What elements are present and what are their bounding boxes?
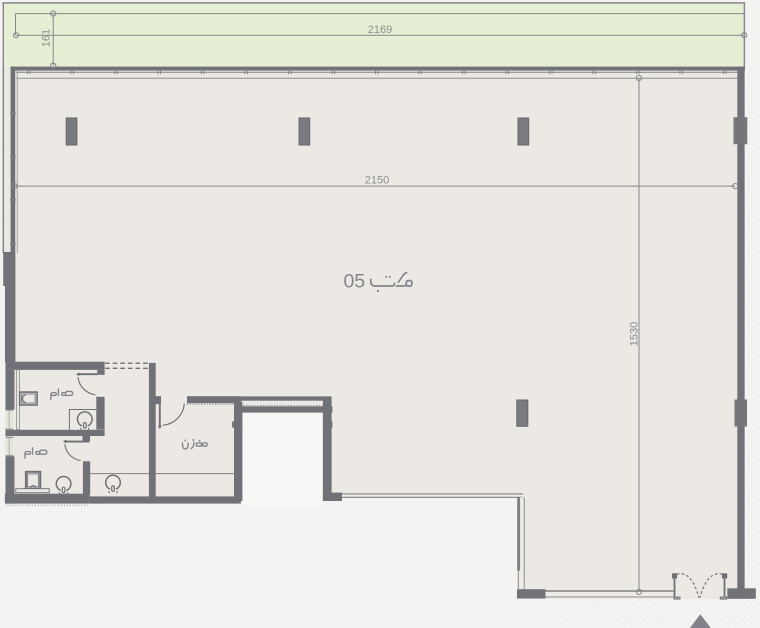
svg-text:2150: 2150 <box>365 175 389 187</box>
svg-text:1530: 1530 <box>629 322 641 346</box>
svg-text:05: 05 <box>343 270 365 292</box>
svg-text:2169: 2169 <box>368 24 392 36</box>
svg-text:161: 161 <box>41 29 53 47</box>
